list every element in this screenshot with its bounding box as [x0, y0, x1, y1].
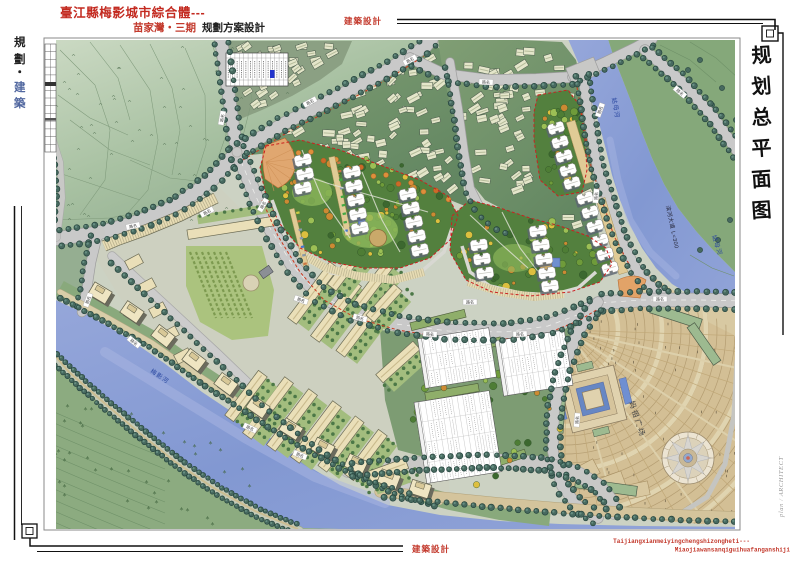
svg-text:路名: 路名 — [573, 416, 580, 424]
svg-text:路名: 路名 — [482, 78, 490, 84]
svg-text:Miaojiawansanqiguihuafanganshi: Miaojiawansanqiguihuafanganshiji — [675, 547, 791, 554]
svg-text:路名: 路名 — [426, 330, 434, 337]
svg-text:路名: 路名 — [656, 296, 664, 302]
svg-text:面: 面 — [751, 168, 772, 191]
svg-text:劃: 劃 — [14, 52, 26, 66]
svg-text:图: 图 — [751, 198, 773, 222]
svg-text:路名: 路名 — [466, 299, 474, 305]
svg-text:划: 划 — [751, 74, 773, 98]
svg-text:臺江縣梅影城市綜合體---: 臺江縣梅影城市綜合體--- — [60, 5, 205, 20]
svg-text:・: ・ — [14, 67, 26, 79]
svg-text:建: 建 — [14, 80, 26, 94]
svg-text:规劃方案設計: 规劃方案設計 — [202, 21, 265, 34]
svg-text:路名: 路名 — [592, 192, 599, 200]
svg-text:建築設計: 建築設計 — [343, 16, 382, 26]
svg-text:plan / ARCHITECT: plan / ARCHITECT — [778, 456, 785, 518]
svg-text:路名: 路名 — [516, 330, 524, 336]
svg-text:规: 规 — [751, 43, 773, 67]
svg-text:平: 平 — [751, 137, 772, 160]
svg-text:規: 規 — [14, 35, 26, 49]
svg-text:总: 总 — [751, 104, 773, 129]
svg-text:Taijiangxianmeiyingchengshizon: Taijiangxianmeiyingchengshizongheti--- — [613, 538, 750, 545]
svg-text:築: 築 — [13, 96, 26, 110]
svg-text:建築設計: 建築設計 — [411, 544, 450, 554]
svg-text:苗家灣・三期: 苗家灣・三期 — [133, 21, 196, 34]
